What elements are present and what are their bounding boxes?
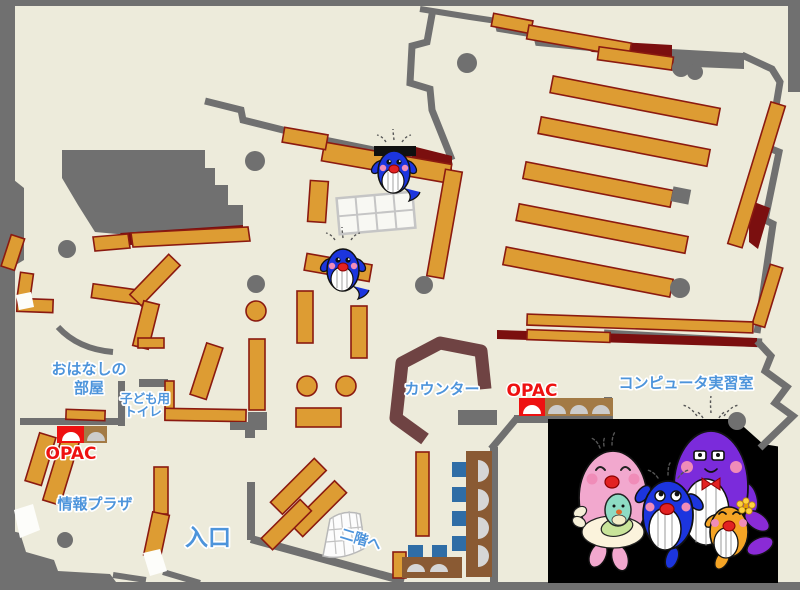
label-storytelling-room: おはなしの bbox=[51, 360, 126, 378]
pillar bbox=[58, 240, 76, 258]
chair bbox=[452, 462, 466, 477]
library-floor-map: おはなしの 部屋 子ども用 トイレ OPAC 情報プラザ 入口 二階へ カウンタ… bbox=[0, 0, 800, 590]
chair bbox=[452, 487, 466, 502]
round-table bbox=[336, 376, 356, 396]
label-opac-left: OPAC bbox=[46, 444, 97, 464]
chair bbox=[408, 545, 423, 557]
pillar bbox=[687, 64, 703, 80]
eye bbox=[716, 453, 720, 457]
bookshelf bbox=[138, 338, 164, 348]
label-computer-room: コンピュータ実習室 bbox=[618, 374, 753, 392]
baby-eye bbox=[613, 505, 616, 508]
cheek bbox=[730, 461, 742, 473]
study-table-grid bbox=[337, 192, 416, 234]
round-table bbox=[297, 376, 317, 396]
wall-toilet-top bbox=[139, 379, 168, 387]
bookshelf bbox=[527, 330, 610, 343]
pillar bbox=[670, 278, 690, 298]
bookshelf bbox=[297, 291, 313, 343]
pupil bbox=[675, 492, 680, 497]
bookshelf bbox=[296, 408, 341, 427]
label-opac-right: OPAC bbox=[507, 381, 558, 401]
bookshelf bbox=[165, 408, 246, 421]
round-table bbox=[246, 301, 266, 321]
baby-eye bbox=[622, 505, 625, 508]
label-counter: カウンター bbox=[404, 380, 479, 398]
desk bbox=[230, 422, 267, 430]
pillar bbox=[247, 275, 265, 293]
desk bbox=[458, 410, 497, 425]
wall-entrance-left bbox=[247, 482, 255, 540]
bookshelf bbox=[308, 180, 329, 222]
mouth bbox=[660, 504, 674, 515]
cheek bbox=[682, 503, 691, 512]
label-entrance: 入口 bbox=[185, 525, 231, 551]
bookshelf bbox=[416, 452, 429, 536]
bookshelf bbox=[249, 339, 265, 410]
cheek bbox=[629, 474, 640, 485]
door-gap bbox=[16, 292, 34, 310]
bookshelf bbox=[66, 409, 105, 420]
mouth bbox=[723, 521, 735, 531]
pillar bbox=[245, 151, 265, 171]
pillar bbox=[457, 53, 477, 73]
pillar bbox=[672, 59, 690, 77]
bookshelf bbox=[154, 467, 168, 514]
floor-map-svg: おはなしの 部屋 子ども用 トイレ OPAC 情報プラザ 入口 二階へ カウンタ… bbox=[0, 0, 800, 590]
desk bbox=[245, 430, 255, 438]
bookshelf bbox=[351, 306, 367, 358]
pupil bbox=[659, 492, 664, 497]
baby-mouth bbox=[616, 510, 622, 515]
wall-top bbox=[0, 0, 800, 6]
label-storytelling-room-2: 部屋 bbox=[74, 379, 104, 397]
cheek bbox=[739, 519, 747, 527]
chair bbox=[452, 511, 466, 526]
eye bbox=[698, 453, 702, 457]
cheek bbox=[646, 503, 655, 512]
chair bbox=[452, 536, 466, 551]
label-kids-toilet-2: トイレ bbox=[124, 404, 162, 419]
pillar bbox=[57, 532, 73, 548]
label-information-plaza: 情報プラザ bbox=[57, 495, 132, 513]
mouth bbox=[605, 476, 619, 488]
wall-right bbox=[788, 0, 800, 92]
baby-bib bbox=[612, 515, 626, 525]
opac-station-left bbox=[57, 426, 107, 443]
pillar bbox=[415, 276, 433, 294]
cheek bbox=[711, 519, 719, 527]
chair bbox=[432, 545, 447, 557]
cheek bbox=[587, 474, 598, 485]
bookshelf bbox=[93, 234, 130, 251]
pillar bbox=[728, 412, 746, 430]
